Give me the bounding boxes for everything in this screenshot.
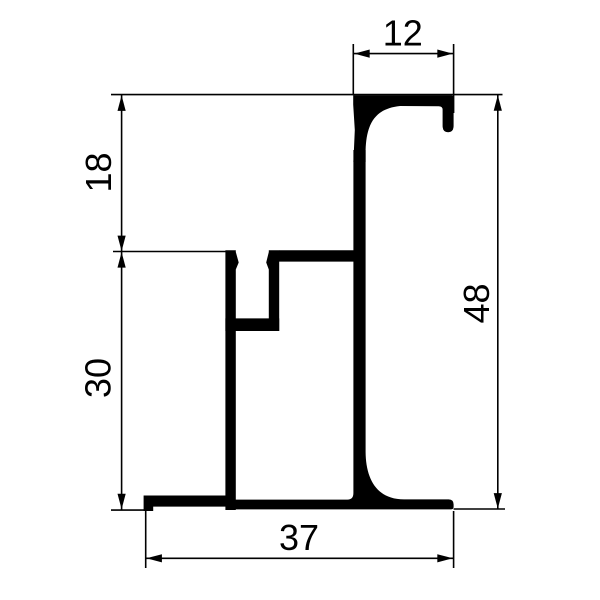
svg-text:30: 30	[77, 358, 118, 398]
svg-text:12: 12	[383, 13, 423, 54]
svg-text:37: 37	[279, 517, 319, 558]
svg-text:18: 18	[78, 152, 119, 192]
svg-text:48: 48	[456, 283, 497, 323]
